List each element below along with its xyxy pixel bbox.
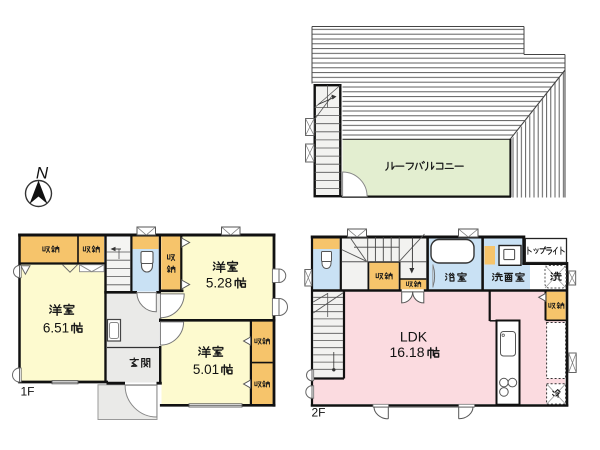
svg-text:6.51: 6.51 <box>43 321 69 336</box>
svg-text:2F: 2F <box>312 406 326 420</box>
svg-text:5.01: 5.01 <box>193 362 219 377</box>
svg-text:16.18: 16.18 <box>389 344 424 360</box>
svg-text:1F: 1F <box>21 385 35 399</box>
svg-text:N: N <box>36 164 49 183</box>
svg-text:LDK: LDK <box>400 329 428 345</box>
svg-text:5.28: 5.28 <box>206 276 232 291</box>
